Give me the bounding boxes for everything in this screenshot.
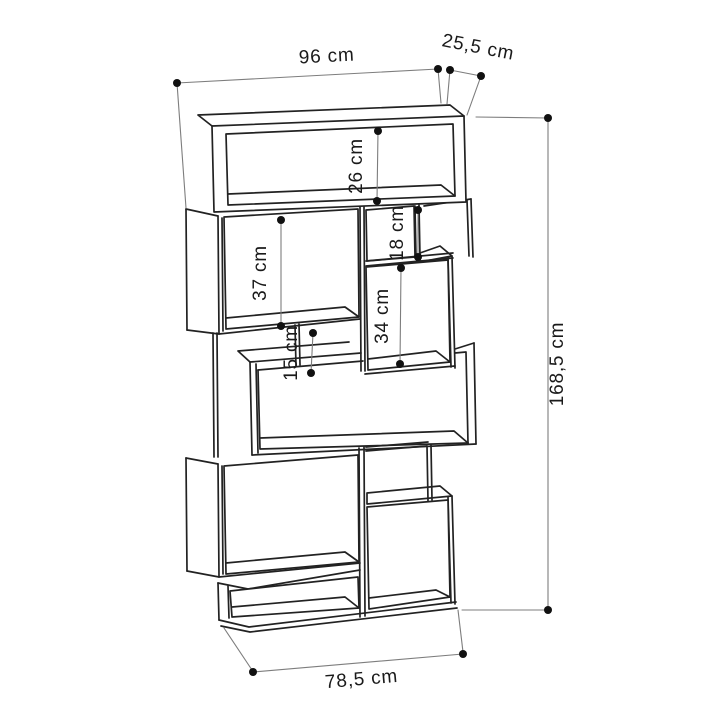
row2-divider-outer bbox=[360, 207, 361, 371]
dim-row-width-ext-left bbox=[224, 628, 252, 670]
row3-top-right-edge bbox=[455, 343, 474, 349]
dim-15: 15 cm bbox=[281, 325, 317, 381]
row4-left-inner-edge bbox=[222, 466, 223, 574]
dim-row-width: 78,5 cm bbox=[224, 610, 467, 693]
dim-total-width-label: 96 cm bbox=[298, 45, 355, 69]
row3-opening-top bbox=[258, 361, 363, 370]
bookcase-drawing bbox=[186, 105, 476, 632]
dim-dot bbox=[307, 369, 315, 377]
row2-divider2-outer bbox=[415, 206, 416, 257]
row4-back-left-edge bbox=[186, 458, 187, 571]
bookcase-dimension-diagram: 96 cm 25,5 cm 26 cm 37 cm bbox=[0, 0, 720, 720]
dim-total-height: 168,5 cm bbox=[462, 114, 568, 614]
dim-37-label: 37 cm bbox=[250, 245, 271, 301]
row3-floor-sliver bbox=[260, 431, 468, 443]
dim-dot bbox=[544, 606, 552, 614]
box34-right-outer-edge bbox=[452, 256, 455, 368]
dim-row-width-label: 78,5 cm bbox=[324, 666, 399, 693]
row5-left-outer-edge bbox=[218, 583, 219, 620]
dim-dot bbox=[173, 79, 181, 87]
dim-dot bbox=[396, 360, 404, 368]
row5-left-inner-edge bbox=[228, 586, 229, 618]
dim-depth-line bbox=[450, 70, 481, 76]
dim-row-width-ext-right bbox=[458, 610, 463, 652]
dim-depth-ext-left bbox=[447, 70, 450, 104]
row4-front-left-edge bbox=[218, 464, 219, 577]
dim-15-label: 15 cm bbox=[281, 325, 302, 381]
row2-front-left-edge bbox=[218, 216, 219, 334]
dim-depth: 25,5 cm bbox=[440, 30, 516, 115]
dim-dot bbox=[414, 253, 422, 261]
dim-total-width-line bbox=[177, 69, 438, 83]
dim-26-label: 26 cm bbox=[346, 138, 367, 194]
row3-left-outer-edge bbox=[250, 362, 252, 455]
row3-opening-right bbox=[455, 352, 468, 443]
dim-dot bbox=[414, 206, 422, 214]
dim-dot bbox=[373, 197, 381, 205]
row2-divider-inner bbox=[364, 207, 365, 371]
row4-connector2-inner bbox=[431, 445, 432, 500]
dim-18-label: 18 cm bbox=[387, 205, 408, 261]
dim-total-width-ext-right bbox=[438, 69, 441, 103]
left-connector-inner bbox=[217, 333, 218, 457]
row2-back-left-edge bbox=[186, 209, 187, 330]
dim-dot bbox=[434, 65, 442, 73]
dim-dot bbox=[477, 72, 485, 80]
diagram-canvas: 96 cm 25,5 cm 26 cm 37 cm bbox=[0, 0, 720, 720]
dim-depth-ext-right bbox=[467, 76, 481, 115]
dim-dot bbox=[277, 216, 285, 224]
dim-dot bbox=[459, 650, 467, 658]
dim-total-height-label: 168,5 cm bbox=[547, 322, 568, 407]
left-connector-outer bbox=[213, 333, 214, 457]
dim-depth-label: 25,5 cm bbox=[440, 30, 516, 65]
row2-right-inner-edge bbox=[467, 200, 469, 256]
row4-divider-inner bbox=[364, 447, 365, 616]
dim-total-width-ext-left bbox=[177, 83, 186, 208]
dim-dot bbox=[309, 329, 317, 337]
row2-right-outer-edge bbox=[471, 199, 473, 257]
row5-right-outer-edge bbox=[452, 496, 455, 604]
dim-dot bbox=[374, 127, 382, 135]
row4-step-top-edge bbox=[186, 458, 218, 464]
row2-large-opening bbox=[224, 209, 359, 329]
dim-15-line bbox=[311, 333, 313, 373]
dim-dot bbox=[397, 264, 405, 272]
bookcase-row1-box bbox=[198, 105, 466, 212]
row4-connector2-outer bbox=[427, 446, 428, 501]
dim-34-label: 34 cm bbox=[372, 288, 393, 344]
row3-top-edge bbox=[250, 353, 361, 362]
row3-right-outer-edge bbox=[474, 343, 476, 444]
dim-dot bbox=[446, 66, 454, 74]
row2-left-inner-edge bbox=[222, 218, 223, 331]
dim-dot bbox=[544, 114, 552, 122]
dim-total-height-tick-top bbox=[476, 117, 548, 118]
dim-dot bbox=[249, 668, 257, 676]
